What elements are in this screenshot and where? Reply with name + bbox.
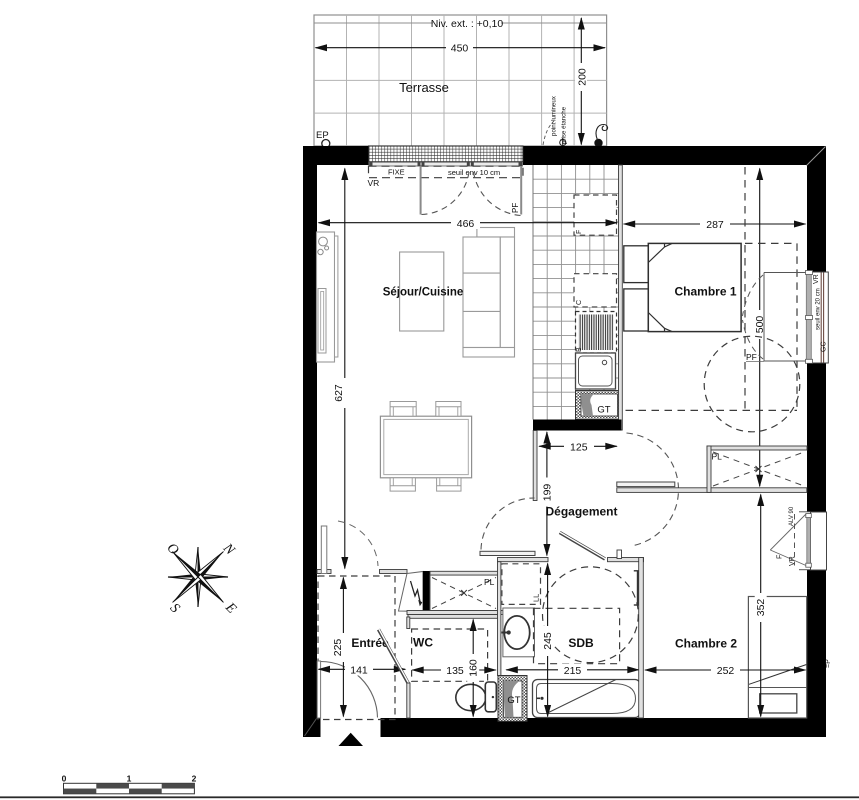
svg-text:0: 0 — [62, 774, 67, 784]
svg-text:F: F — [777, 555, 784, 559]
svg-text:245: 245 — [542, 632, 554, 650]
svg-text:225: 225 — [332, 639, 344, 657]
svg-text:PL: PL — [484, 577, 495, 587]
svg-text:Niv. ext. : +0,10: Niv. ext. : +0,10 — [431, 18, 504, 30]
svg-text:GC: GC — [821, 342, 828, 353]
svg-text:Chambre 1: Chambre 1 — [674, 285, 736, 299]
svg-text:199: 199 — [541, 484, 553, 502]
svg-text:=P: =P — [825, 659, 832, 668]
svg-text:141: 141 — [350, 665, 368, 677]
svg-text:Chambre 2: Chambre 2 — [675, 637, 737, 651]
svg-text:160: 160 — [468, 659, 480, 677]
svg-text:352: 352 — [755, 599, 767, 617]
svg-text:GT: GT — [507, 695, 520, 706]
svg-text:125: 125 — [570, 442, 588, 454]
svg-text:450: 450 — [451, 43, 469, 55]
svg-text:point lumineux: point lumineux — [551, 95, 558, 136]
svg-text:215: 215 — [564, 665, 582, 677]
svg-text:PF: PF — [746, 352, 757, 362]
svg-text:200: 200 — [577, 68, 589, 86]
svg-text:ALV 90: ALV 90 — [789, 506, 795, 526]
svg-text:VR: VR — [813, 274, 820, 284]
svg-text:135: 135 — [446, 665, 464, 677]
svg-text:C: C — [576, 300, 583, 305]
svg-text:1: 1 — [127, 774, 132, 784]
svg-text:Dégagement: Dégagement — [545, 505, 617, 519]
svg-text:SDB: SDB — [568, 636, 594, 650]
svg-text:287: 287 — [706, 219, 724, 231]
svg-text:E: E — [221, 599, 239, 617]
svg-text:PL: PL — [712, 452, 723, 462]
svg-text:VR: VR — [368, 178, 380, 188]
svg-text:S: S — [167, 601, 183, 617]
svg-text:B: B — [576, 347, 583, 352]
svg-text:252: 252 — [717, 665, 735, 677]
svg-text:prise étanche: prise étanche — [561, 106, 568, 144]
svg-text:LL: LL — [532, 594, 541, 602]
svg-text:GT: GT — [597, 405, 610, 416]
svg-text:FIXE: FIXE — [388, 168, 405, 177]
svg-text:seuil env 20 cm: seuil env 20 cm — [816, 288, 822, 330]
svg-text:466: 466 — [457, 218, 475, 230]
svg-text:N: N — [219, 540, 237, 558]
svg-text:627: 627 — [333, 384, 345, 402]
svg-text:O: O — [164, 541, 182, 559]
svg-text:Terrasse: Terrasse — [399, 80, 449, 95]
svg-text:VR: VR — [789, 556, 796, 566]
svg-text:PF: PF — [511, 203, 520, 213]
svg-text:2: 2 — [192, 774, 197, 784]
svg-text:Séjour/Cuisine: Séjour/Cuisine — [383, 287, 464, 299]
svg-text:F: F — [576, 230, 583, 234]
svg-text:WC: WC — [413, 636, 433, 650]
